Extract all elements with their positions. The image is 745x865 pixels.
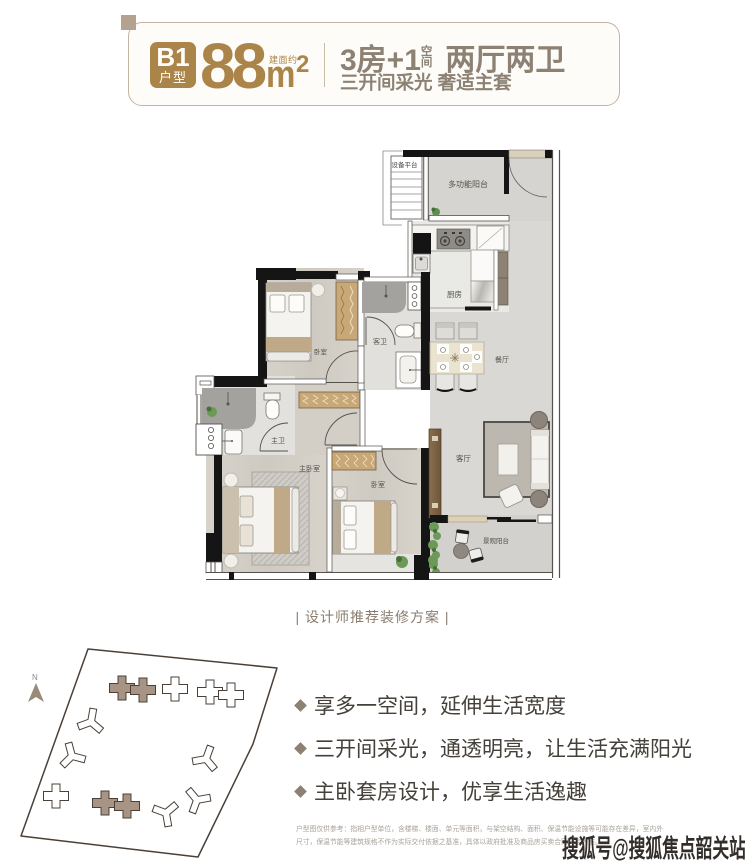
svg-text:卧室: 卧室 [314, 347, 328, 356]
svg-text:客卫: 客卫 [373, 337, 387, 346]
svg-text:餐厅: 餐厅 [495, 355, 509, 364]
svg-text:景观阳台: 景观阳台 [483, 536, 509, 545]
svg-text:客厅: 客厅 [456, 453, 471, 463]
svg-text:多功能阳台: 多功能阳台 [448, 179, 488, 189]
svg-text:设备平台: 设备平台 [392, 160, 418, 169]
svg-text:卧室: 卧室 [371, 480, 385, 489]
svg-text:主卧室: 主卧室 [299, 464, 320, 473]
svg-text:主卫: 主卫 [271, 436, 285, 445]
svg-text:N: N [32, 673, 38, 682]
svg-text:厨房: 厨房 [447, 289, 462, 299]
